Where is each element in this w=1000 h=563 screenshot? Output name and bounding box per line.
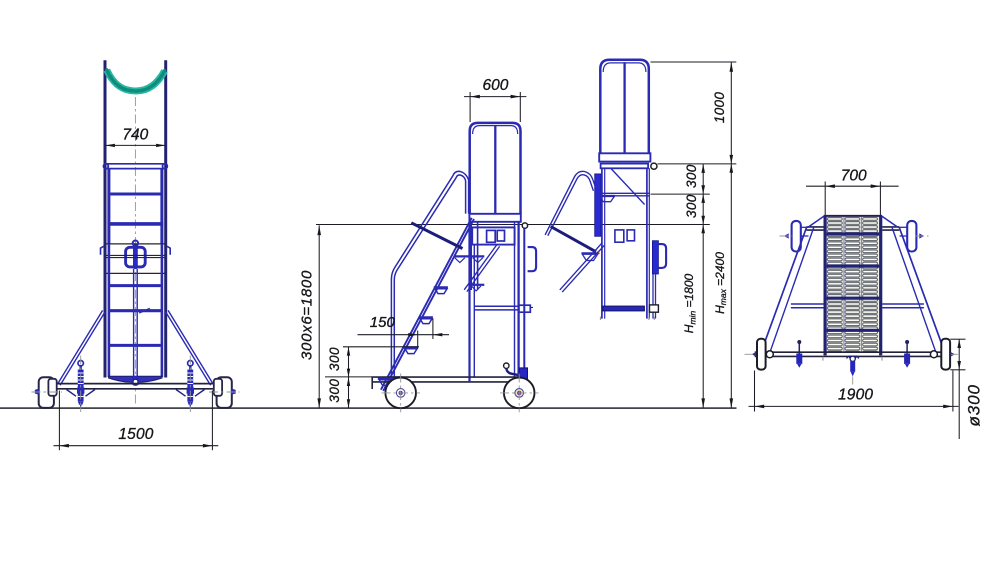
svg-text:300: 300 [327, 379, 342, 403]
svg-text:300: 300 [684, 194, 699, 218]
svg-text:1900: 1900 [838, 386, 873, 403]
svg-text:600: 600 [482, 77, 508, 94]
svg-text:1000: 1000 [712, 92, 727, 123]
svg-text:1500: 1500 [118, 426, 153, 443]
svg-text:300: 300 [684, 164, 699, 188]
svg-text:150: 150 [370, 314, 396, 331]
svg-text:300: 300 [327, 347, 342, 371]
svg-text:ø300: ø300 [964, 384, 983, 426]
svg-text:740: 740 [122, 127, 148, 144]
svg-text:700: 700 [841, 168, 867, 185]
svg-text:300x6=1800: 300x6=1800 [299, 270, 316, 360]
